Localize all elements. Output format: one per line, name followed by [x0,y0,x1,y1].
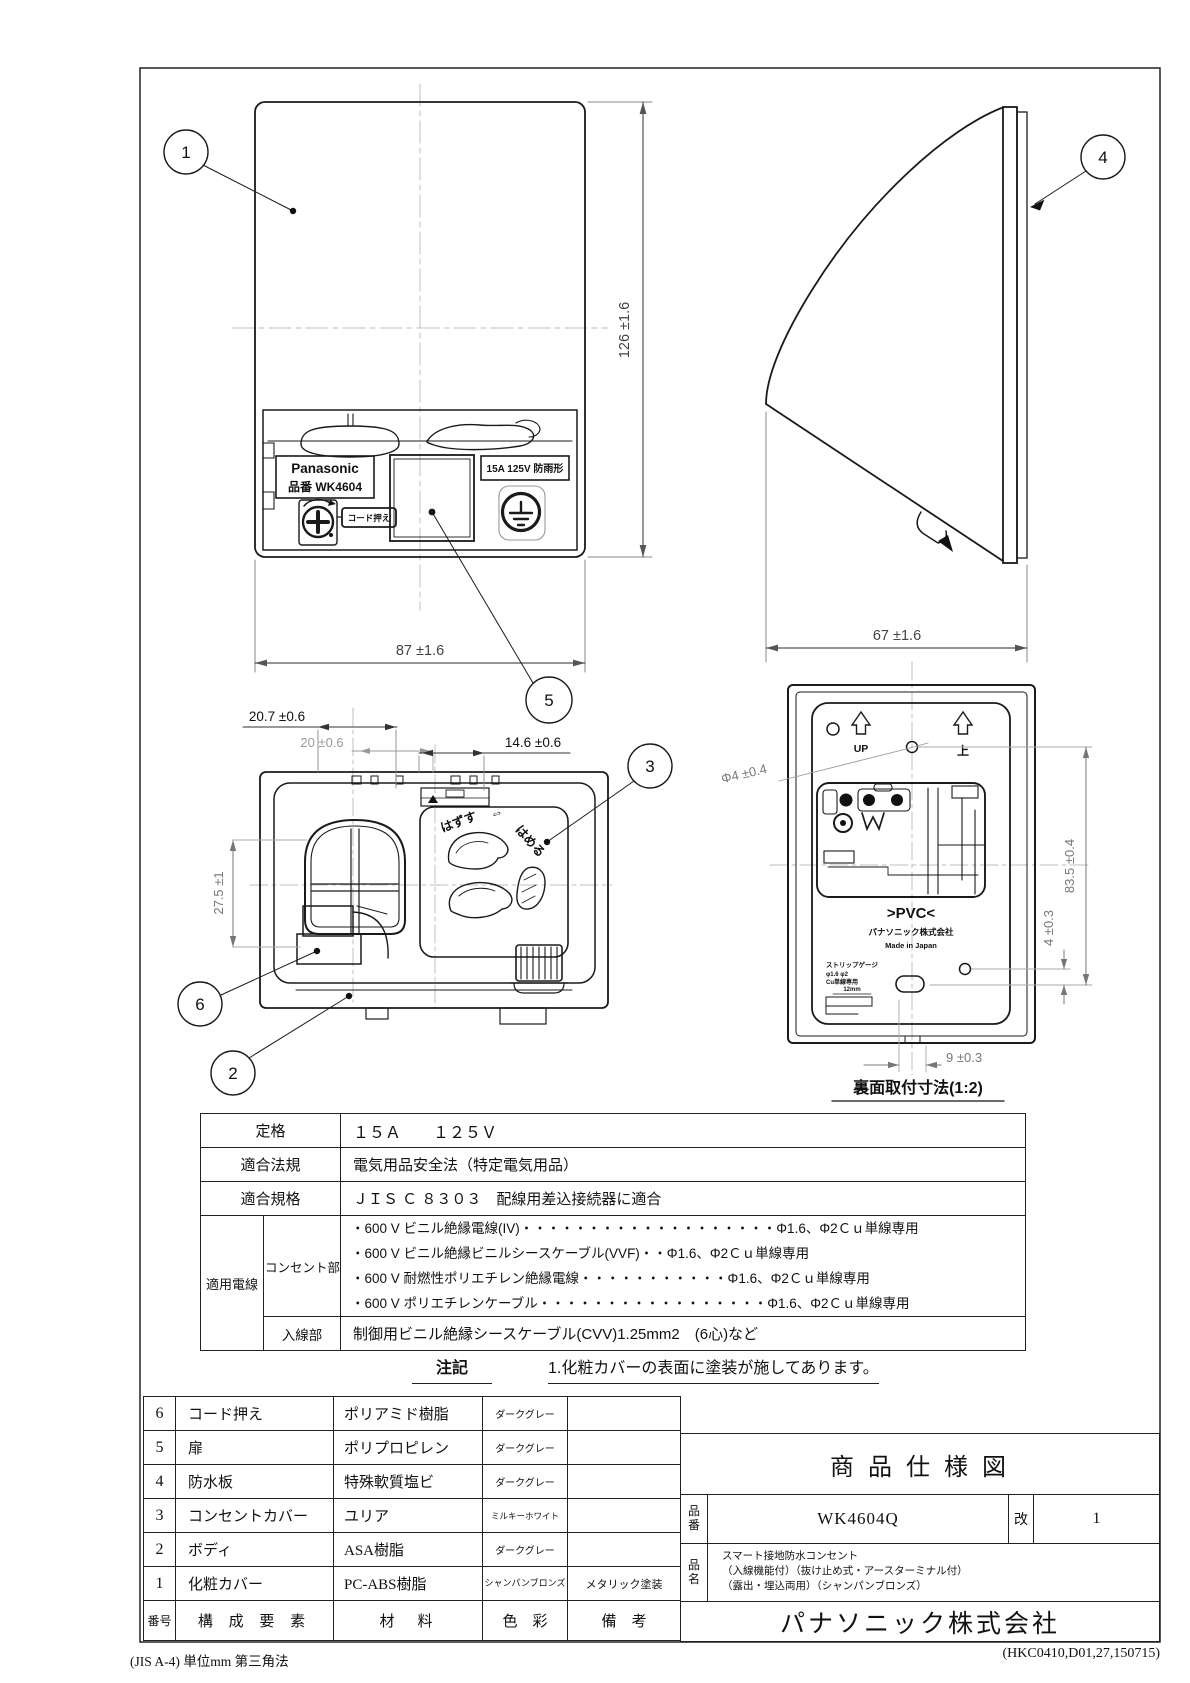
up-arrow-icon [852,712,870,734]
footer-left: (JIS A-4) 単位mm 第三角法 [130,1650,289,1670]
remove-text: はずす [438,808,478,835]
header-name: 構 成 要 素 [176,1601,334,1641]
header-material: 材 料 [334,1601,483,1641]
dim-width-text: 87 ±1.6 [396,643,444,659]
part-color: シャンパンブロンズ [483,1567,568,1601]
screw-hole [960,964,971,975]
dim-20-7 [243,724,397,788]
part-number-label: 品番 [681,1495,708,1543]
dim-27-5-text: 27.5 ±1 [211,871,226,914]
balloon-4-num: 4 [1098,148,1107,167]
spec-table: 定格 １５Ａ １２５Ｖ 適合法規 電気用品安全法（特定電気用品） 適合規格 ＪＩ… [200,1113,1026,1351]
revision-label: 改 [1008,1495,1034,1543]
part-color: ダークグレー [483,1465,568,1499]
dim-20-7-text: 20.7 ±0.6 [249,709,305,724]
dim-20 [352,748,433,772]
dim-depth-text: 67 ±1.6 [873,628,921,644]
header-color: 色 彩 [483,1601,568,1641]
part-material: ポリアミド樹脂 [334,1397,483,1431]
spec-std-value: ＪＩＳ Ｃ ８３０３ 配線用差込接続器に適合 [341,1182,1026,1216]
part-name: コード押え [176,1397,334,1431]
dim-height-text: 126 ±1.6 [617,302,633,358]
spec-law-label: 適合法規 [201,1148,341,1182]
back-view: UP 上 Φ4 ±0.4 >PVC [720,662,1092,1101]
dim-14-6-text: 14.6 ±0.6 [505,735,561,750]
part-no: 5 [144,1431,176,1465]
part-color: ダークグレー [483,1431,568,1465]
part-number-value: WK4604Q [708,1495,1008,1543]
part-no: 1 [144,1567,176,1601]
part-name: 防水板 [176,1465,334,1499]
spec-outlet-line-1: ・600 V ビニル絶縁電線(IV)・・・・・・・・・・・・・・・・・・・Φ1.… [351,1216,1025,1241]
part-no: 2 [144,1533,176,1567]
rating-text: 15A 125V 防雨形 [487,462,564,475]
part-color: ダークグレー [483,1397,568,1431]
parts-header-row: 番号 構 成 要 素 材 料 色 彩 備 考 [144,1601,681,1641]
part-material: 特殊軟質塩ビ [334,1465,483,1499]
spec-inlet-label: 入線部 [264,1317,341,1351]
up-en-text: UP [854,743,869,755]
note-text: 1.化粧カバーの表面に塗装が施してあります。 [548,1354,879,1384]
company-name: パナソニック株式会社 [681,1601,1159,1641]
svg-text:φ1.6 φ2: φ1.6 φ2 [826,972,849,978]
header-no: 番号 [144,1601,176,1641]
part-no: 6 [144,1397,176,1431]
hook-detail [917,512,946,543]
side-view: 67 ±1.6 [766,107,1027,662]
up-arrow-ja-icon [954,712,972,734]
spec-law-value: 電気用品安全法（特定電気用品） [341,1148,1026,1182]
dim-9-text: 9 ±0.3 [946,1050,982,1065]
inlet-door [390,455,474,541]
part-remark [568,1499,681,1533]
spec-outlet-lines: ・600 V ビニル絶縁電線(IV)・・・・・・・・・・・・・・・・・・・Φ1.… [341,1216,1026,1317]
pvc-text: >PVC< [887,905,936,922]
balloon-2-num: 2 [228,1064,237,1083]
dim-83-5-text: 83.5 ±0.4 [1062,839,1077,893]
balloons: 1 2 3 4 5 6 [164,130,1125,1095]
part-remark [568,1431,681,1465]
screw-terminal [299,500,337,545]
parts-row-1: 1 化粧カバー PC-ABS樹脂 シャンパンブロンズ メタリック塗装 [144,1567,681,1601]
part-no: 4 [144,1465,176,1499]
dim-20-text: 20 ±0.6 [300,735,343,750]
part-material: PC-ABS樹脂 [334,1567,483,1601]
cover-profile [766,107,1004,561]
balloon-5-num: 5 [544,691,553,710]
part-name: 化粧カバー [176,1567,334,1601]
spec-rating-value: １５Ａ １２５Ｖ [341,1114,1026,1148]
dim-depth-67 [766,412,1027,662]
back-mechanism [817,783,985,897]
header-remark: 備 考 [568,1601,681,1641]
spec-rating-label: 定格 [201,1114,341,1148]
part-material: ポリプロピレン [334,1431,483,1465]
dim-4 [972,950,1070,1004]
spec-outlet-line-3: ・600 V 耐燃性ポリエチレン絶縁電線・・・・・・・・・・・Φ1.6、Φ2Ｃｕ… [351,1266,1025,1291]
parts-row-3: 3 コンセントカバー ユリア ミルキーホワイト [144,1499,681,1533]
part-name: 扉 [176,1431,334,1465]
parts-row-4: 4 防水板 特殊軟質塩ビ ダークグレー [144,1465,681,1499]
revision-value: 1 [1034,1495,1159,1543]
spec-wire-label: 適用電線 [201,1216,264,1351]
mount-plate [1003,107,1017,563]
open-view: はずす ⇔ はめる 20.7 ±0.6 20 ±0.6 14.6 ±0.6 [211,708,612,1024]
earth-symbol [499,486,545,540]
part-material: ユリア [334,1499,483,1533]
part-no: 3 [144,1499,176,1533]
outlet-cross [305,820,405,934]
part-name: ボディ [176,1533,334,1567]
dim-hole-text: Φ4 ±0.4 [720,761,769,786]
part-remark [568,1533,681,1567]
footer-right: (HKC0410,D01,27,150715) [930,1646,1160,1662]
spec-std-label: 適合規格 [201,1182,341,1216]
product-name-line-1: スマート接地防水コンセント [722,1549,1159,1564]
spec-outlet-line-4: ・600 V ポリエチレンケーブル・・・・・・・・・・・・・・・・・Φ1.6、Φ… [351,1291,1025,1316]
up-ja-text: 上 [957,743,969,758]
product-name-value: スマート接地防水コンセント （入線機能付）（抜け止め式・アースターミナル付） （… [708,1544,1159,1601]
svg-text:Cu単線専用: Cu単線専用 [826,978,858,986]
part-remark [568,1397,681,1431]
balloon-1-num: 1 [181,143,190,162]
attach-text: はめる [512,823,548,860]
model-text: 品番 WK4604 [288,479,362,494]
spec-inlet-value: 制御用ビニル絶縁シースケーブル(CVV)1.25mm2 (6心)など [341,1317,1026,1351]
product-name-line-2: （入線機能付）（抜け止め式・アースターミナル付） [722,1564,1159,1579]
part-material: ASA樹脂 [334,1533,483,1567]
key-slot [896,976,924,992]
spec-outlet-label: コンセント部 [264,1216,341,1317]
origin-text: Made in Japan [885,941,937,950]
parts-row-2: 2 ボディ ASA樹脂 ダークグレー [144,1533,681,1567]
back-view-caption: 裏面取付寸法(1:2) [852,1078,983,1097]
brand-text: Panasonic [291,461,359,476]
balloon-6-num: 6 [195,995,204,1014]
gauge-text: 12mm [843,987,860,993]
balloon-3-num: 3 [645,757,654,776]
part-name: コンセントカバー [176,1499,334,1533]
grommet [510,945,568,993]
product-name-label: 品名 [681,1544,708,1601]
note-label: 注記 [412,1354,492,1384]
front-view: Panasonic 品番 WK4604 15A 125V 防雨形 コード押え [232,84,652,672]
svg-text:ストリップゲージ: ストリップゲージ [826,960,878,969]
maker-text: パナソニック株式会社 [868,927,954,937]
product-name-line-3: （露出・埋込両用）（シャンパンブロンズ） [722,1579,1159,1594]
part-remark: メタリック塗装 [568,1567,681,1601]
parts-row-6: 6 コード押え ポリアミド樹脂 ダークグレー [144,1397,681,1431]
lever-shape [427,425,534,450]
cord-tag-text: コード押え [348,513,391,523]
sheet-title: 商 品 仕 様 図 [681,1434,1159,1494]
title-block: 商 品 仕 様 図 品番 WK4604Q 改 1 品名 スマート接地防水コンセン… [680,1433,1160,1642]
strip-gauge: ストリップゲージ φ1.6 φ2 Cu単線専用 12mm [826,960,878,1014]
spec-outlet-line-2: ・600 V ビニル絶縁ビニルシースケーブル(VVF)・・Φ1.6、Φ2Ｃｕ単線… [351,1241,1025,1266]
dim-27-5 [230,840,307,947]
parts-table: 6 コード押え ポリアミド樹脂 ダークグレー 5 扉 ポリプロピレン ダークグレ… [143,1396,681,1641]
parts-row-5: 5 扉 ポリプロピレン ダークグレー [144,1431,681,1465]
door-edge-shape [301,426,399,457]
part-color: ミルキーホワイト [483,1499,568,1533]
part-remark [568,1465,681,1499]
part-color: ダークグレー [483,1533,568,1567]
dim-4-text: 4 ±0.3 [1041,910,1056,946]
